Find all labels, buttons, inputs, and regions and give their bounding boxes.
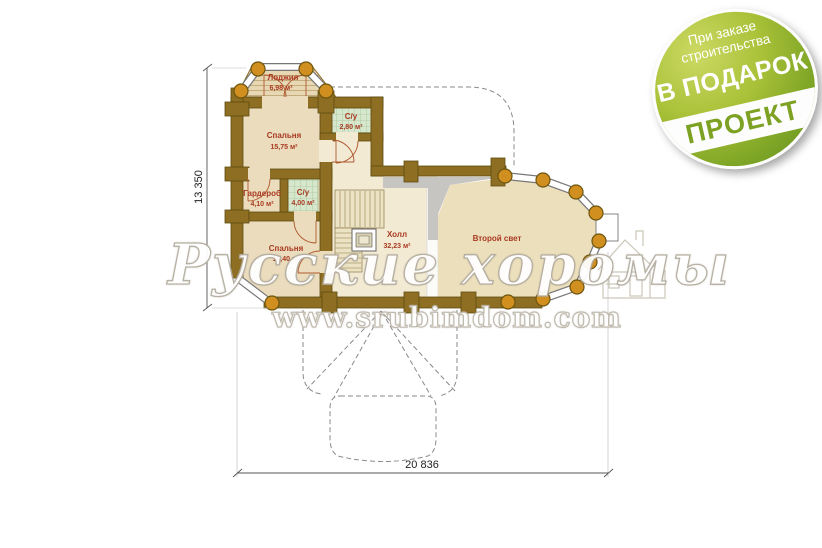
- room-wc2-name: С/у: [297, 188, 310, 197]
- room-loggia-area: 6,98 м²: [269, 85, 293, 92]
- dimension-width: 20 836: [405, 459, 439, 471]
- room-wc1-name: С/у: [345, 112, 358, 121]
- room-wardrobe-area: 4,10 м²: [250, 201, 274, 208]
- room-loggia-name: Лоджия: [268, 73, 299, 82]
- dimension-height: 13 350: [193, 170, 205, 204]
- page: 13 350 20 836 Лоджия 6,98 м² Спальня 15,…: [0, 0, 822, 548]
- room-wardrobe-name: Гардероб: [243, 189, 281, 198]
- room-bedroom1-name: Спальня: [267, 131, 302, 140]
- url-watermark: www.srubimdom.com: [272, 301, 572, 334]
- brand-watermark: Русские хоромы: [168, 232, 688, 298]
- room-bedroom1-area: 15,75 м²: [271, 144, 299, 151]
- room-wc2-area: 4,00 м²: [291, 200, 315, 207]
- room-wc1-area: 2,80 м²: [339, 124, 363, 131]
